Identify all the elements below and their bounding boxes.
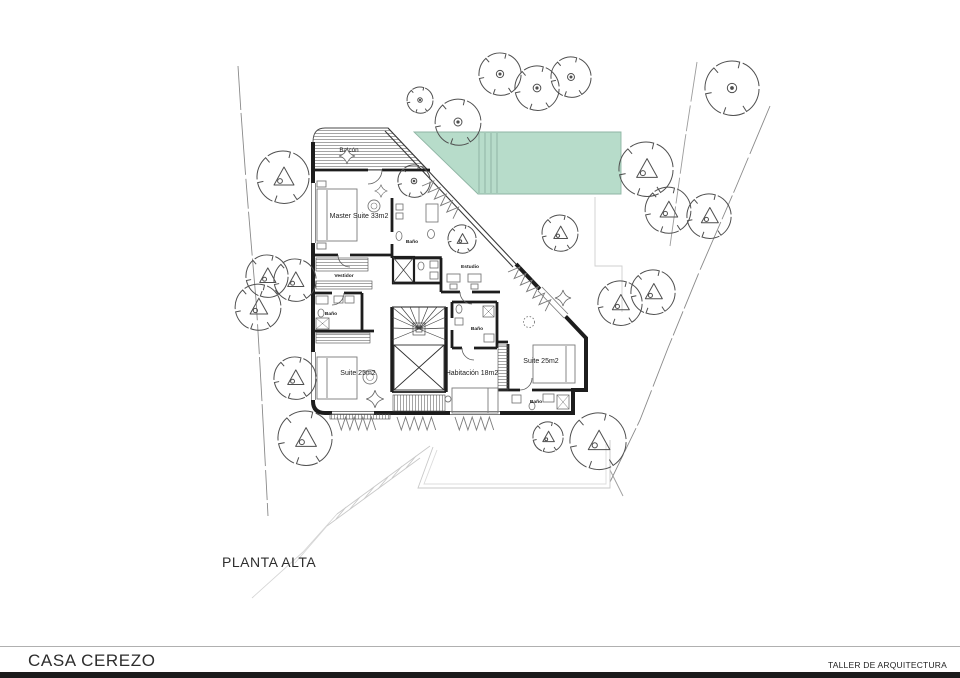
- room-label-bath-mid: Baño: [471, 326, 483, 332]
- site-plan-drawing: Balcón Master Suite 33m2 Vestidor Baño B…: [0, 0, 960, 678]
- room-label-habitacion: Habitación 18m2: [446, 370, 499, 377]
- balcony-deck: [313, 128, 428, 170]
- room-label-suite-right: Suite 25m2: [523, 358, 559, 365]
- room-label-master-suite: Master Suite 33m2: [330, 213, 389, 220]
- room-label-bath-top: Baño: [406, 239, 418, 245]
- architectural-sheet: Balcón Master Suite 33m2 Vestidor Baño B…: [0, 0, 960, 678]
- room-label-bath-left: Baño: [325, 311, 337, 317]
- room-label-suite-left: Suite 25m2: [340, 370, 376, 377]
- bottom-bar: [0, 672, 960, 678]
- plan-title: PLANTA ALTA: [222, 554, 316, 570]
- room-label-vestidor: Vestidor: [334, 273, 353, 279]
- room-label-bath-bottom: Baño: [530, 399, 542, 405]
- room-label-estudio: Estudio: [461, 264, 479, 270]
- project-title: CASA CEREZO: [28, 651, 156, 671]
- studio-name: TALLER DE ARQUITECTURA: [828, 660, 947, 670]
- titleblock-rule: [0, 646, 960, 647]
